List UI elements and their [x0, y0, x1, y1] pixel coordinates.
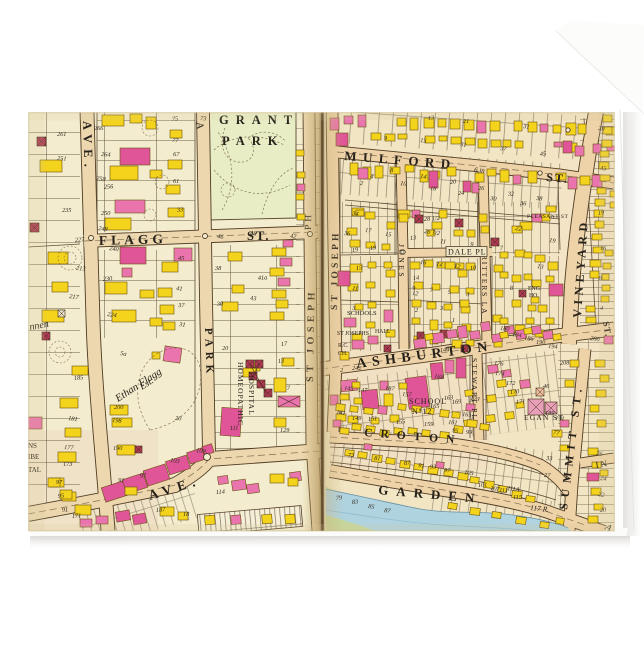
- svg-text:147: 147: [358, 387, 368, 394]
- svg-text:258: 258: [96, 175, 107, 183]
- svg-text:33: 33: [176, 207, 184, 214]
- svg-text:187: 187: [385, 385, 396, 393]
- svg-text:1: 1: [452, 317, 455, 324]
- svg-text:38: 38: [214, 265, 222, 272]
- svg-text:3: 3: [465, 291, 470, 298]
- svg-text:93: 93: [430, 464, 437, 471]
- svg-text:31: 31: [178, 321, 186, 329]
- svg-text:RITTERS LA: RITTERS LA: [480, 255, 489, 315]
- svg-text:114: 114: [216, 488, 225, 496]
- svg-text:11: 11: [440, 238, 447, 246]
- svg-text:109: 109: [196, 447, 207, 455]
- svg-text:190: 190: [113, 445, 123, 452]
- svg-text:161: 161: [448, 419, 458, 427]
- svg-text:HO.: HO.: [529, 293, 539, 299]
- svg-text:227: 227: [75, 236, 86, 244]
- svg-text:31: 31: [459, 141, 467, 149]
- svg-text:36: 36: [343, 230, 352, 238]
- svg-text:187: 187: [156, 506, 167, 514]
- svg-text:251: 251: [57, 155, 67, 163]
- svg-text:13: 13: [278, 358, 285, 365]
- svg-text:198: 198: [112, 417, 123, 425]
- svg-text:HOMEOPATHIC: HOMEOPATHIC: [236, 362, 245, 426]
- svg-text:14: 14: [420, 173, 427, 181]
- svg-text:189: 189: [545, 410, 555, 417]
- svg-text:145: 145: [344, 385, 354, 393]
- svg-text:171: 171: [516, 398, 526, 406]
- svg-text:46: 46: [543, 383, 550, 390]
- svg-text:169: 169: [452, 398, 463, 406]
- svg-text:85: 85: [368, 503, 375, 511]
- svg-text:5: 5: [448, 289, 452, 296]
- svg-text:61: 61: [173, 178, 179, 185]
- svg-text:194: 194: [548, 343, 558, 351]
- svg-text:256: 256: [104, 183, 115, 191]
- svg-text:83: 83: [352, 499, 359, 506]
- svg-text:144: 144: [440, 346, 450, 354]
- svg-text:6 in: 6 in: [474, 166, 486, 175]
- svg-text:JONES: JONES: [397, 244, 406, 279]
- svg-text:208: 208: [560, 359, 571, 367]
- svg-text:174: 174: [495, 370, 505, 378]
- svg-text:18: 18: [183, 511, 190, 518]
- svg-text:91: 91: [118, 477, 125, 484]
- svg-text:13: 13: [537, 263, 544, 271]
- svg-text:184: 184: [512, 331, 522, 339]
- svg-text:34: 34: [351, 210, 359, 218]
- svg-text:33: 33: [545, 455, 553, 462]
- svg-text:261: 261: [57, 131, 66, 138]
- svg-text:101: 101: [478, 481, 488, 489]
- svg-text:PARK: PARK: [222, 134, 285, 148]
- svg-text:91: 91: [62, 507, 69, 514]
- svg-text:95: 95: [452, 427, 459, 435]
- svg-text:45: 45: [178, 255, 184, 262]
- svg-text:28 1/2: 28 1/2: [424, 215, 441, 223]
- svg-text:248: 248: [98, 225, 109, 233]
- svg-text:91: 91: [418, 462, 425, 470]
- svg-text:105: 105: [464, 469, 474, 477]
- svg-text:168: 168: [434, 373, 445, 381]
- svg-text:242: 242: [352, 365, 362, 372]
- svg-text:250: 250: [101, 210, 111, 217]
- svg-text:SCHOOL: SCHOOL: [409, 397, 447, 406]
- svg-text:264: 264: [101, 151, 111, 159]
- svg-text:14: 14: [413, 275, 420, 282]
- svg-text:30: 30: [216, 301, 225, 309]
- svg-text:45: 45: [540, 151, 547, 158]
- svg-text:20: 20: [222, 345, 229, 352]
- svg-text:5a: 5a: [120, 350, 127, 358]
- svg-text:186: 186: [524, 335, 535, 343]
- svg-text:149: 149: [352, 415, 362, 422]
- svg-text:230: 230: [103, 275, 114, 283]
- svg-text:97: 97: [56, 479, 63, 486]
- svg-text:181: 181: [68, 415, 78, 423]
- svg-text:173: 173: [63, 461, 72, 468]
- svg-text:185: 185: [74, 374, 84, 382]
- svg-text:165: 165: [462, 411, 472, 419]
- svg-text:235: 235: [62, 207, 71, 214]
- svg-text:HALL: HALL: [375, 329, 391, 335]
- svg-text:111: 111: [230, 424, 239, 432]
- svg-text:154: 154: [477, 343, 487, 351]
- svg-text:32: 32: [507, 191, 516, 199]
- svg-text:176: 176: [494, 360, 505, 368]
- svg-text:180: 180: [500, 325, 511, 333]
- svg-text:41a: 41a: [258, 274, 268, 282]
- svg-text:14: 14: [436, 261, 443, 269]
- svg-text:73: 73: [348, 452, 354, 459]
- svg-text:155: 155: [396, 418, 406, 426]
- svg-text:213: 213: [76, 265, 86, 273]
- svg-text:159: 159: [424, 421, 434, 428]
- svg-text:103: 103: [170, 457, 180, 465]
- svg-text:190: 190: [536, 339, 546, 346]
- svg-text:HOSPITAL: HOSPITAL: [247, 372, 256, 416]
- svg-text:129: 129: [280, 427, 290, 434]
- svg-text:15: 15: [356, 265, 363, 272]
- svg-text:26: 26: [478, 185, 485, 192]
- svg-text:217: 217: [69, 293, 80, 301]
- svg-text:165: 165: [430, 403, 439, 410]
- svg-text:ENG.: ENG.: [528, 286, 542, 292]
- svg-text:PLEASANT ST: PLEASANT ST: [527, 214, 568, 220]
- svg-text:115: 115: [513, 494, 522, 501]
- svg-text:172: 172: [506, 380, 516, 387]
- svg-text:200: 200: [114, 404, 124, 411]
- svg-text:15: 15: [385, 231, 392, 238]
- svg-text:224: 224: [107, 311, 117, 319]
- svg-text:24: 24: [458, 190, 464, 197]
- svg-text:266: 266: [94, 125, 104, 132]
- svg-text:11: 11: [352, 285, 359, 293]
- svg-text:DALE PL: DALE PL: [448, 248, 486, 257]
- svg-text:36: 36: [519, 200, 528, 208]
- svg-text:15: 15: [420, 137, 427, 145]
- svg-text:3: 3: [439, 305, 443, 312]
- svg-text:81: 81: [374, 455, 381, 462]
- svg-text:173: 173: [470, 395, 480, 403]
- svg-text:13: 13: [410, 235, 417, 242]
- svg-text:43: 43: [250, 295, 257, 302]
- svg-text:240: 240: [109, 245, 120, 253]
- svg-text:170: 170: [510, 388, 521, 396]
- svg-text:ST.: ST.: [546, 170, 570, 186]
- svg-text:171: 171: [72, 512, 82, 520]
- svg-text:PARK: PARK: [202, 328, 216, 379]
- svg-text:3: 3: [351, 305, 356, 312]
- svg-text:31: 31: [522, 123, 530, 131]
- svg-text:191: 191: [555, 415, 565, 423]
- svg-text:151: 151: [368, 415, 378, 423]
- svg-text:95: 95: [58, 493, 65, 500]
- svg-text:37: 37: [177, 302, 186, 310]
- svg-text:41: 41: [176, 285, 183, 293]
- svg-text:99: 99: [466, 429, 473, 436]
- svg-text:38: 38: [535, 195, 544, 203]
- svg-text:157: 157: [402, 391, 413, 399]
- svg-text:A: A: [193, 121, 206, 130]
- svg-text:177: 177: [64, 444, 75, 452]
